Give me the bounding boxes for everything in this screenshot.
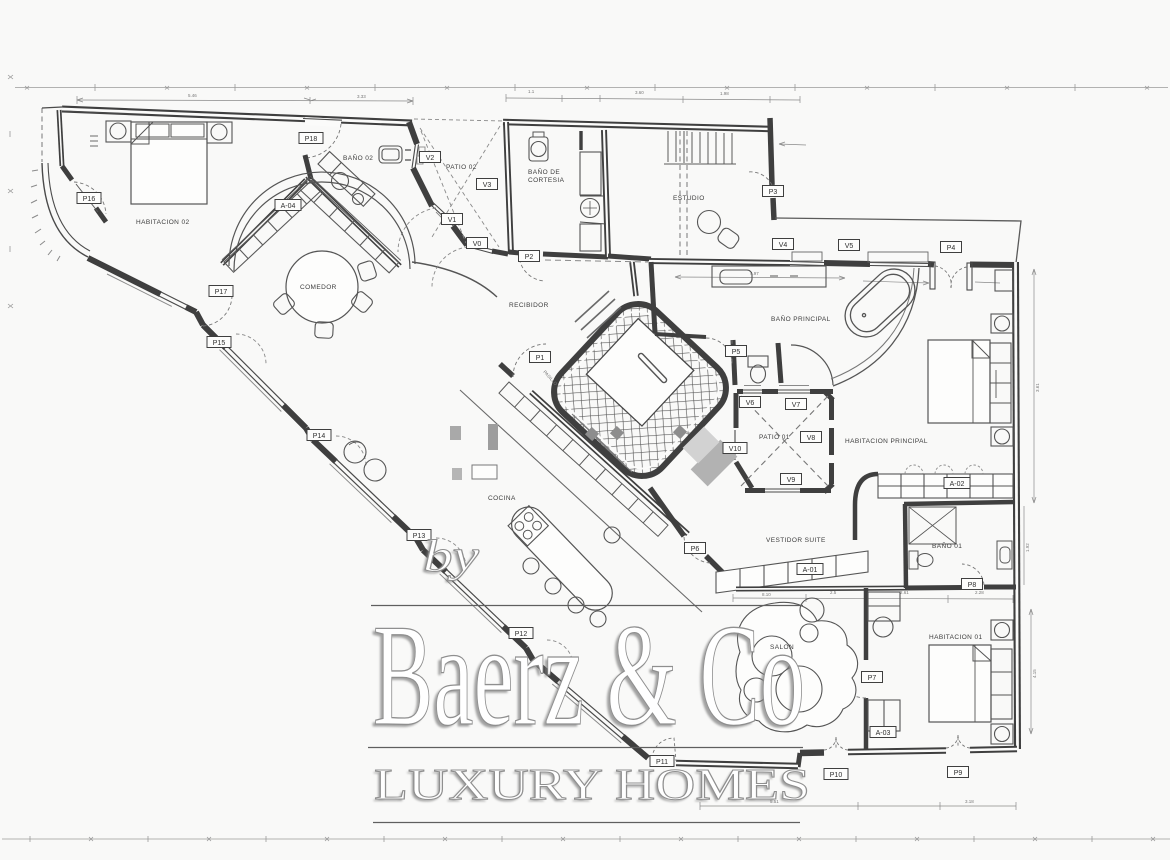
svg-text:5.46: 5.46 (188, 93, 197, 98)
svg-text:P18: P18 (305, 136, 318, 143)
svg-text:P2: P2 (525, 254, 534, 261)
svg-text:A-01: A-01 (803, 567, 818, 574)
svg-text:V2: V2 (426, 155, 435, 162)
svg-text:P8: P8 (968, 582, 977, 589)
svg-text:LUXURY HOMES: LUXURY HOMES (374, 760, 810, 809)
svg-text:P17: P17 (215, 289, 228, 296)
svg-text:V0: V0 (473, 241, 482, 248)
svg-text:3.33: 3.33 (357, 94, 366, 99)
svg-text:CORTESIA: CORTESIA (528, 177, 565, 184)
svg-text:VESTIDOR SUITE: VESTIDOR SUITE (766, 537, 826, 544)
svg-text:A-04: A-04 (281, 203, 296, 210)
svg-text:Baerz & Co: Baerz & Co (373, 594, 805, 756)
svg-text:P15: P15 (213, 340, 226, 347)
svg-text:V9: V9 (787, 477, 796, 484)
svg-text:1.92: 1.92 (1025, 543, 1030, 552)
svg-text:V5: V5 (845, 243, 854, 250)
svg-text:P5: P5 (732, 349, 741, 356)
svg-text:RECIBIDOR: RECIBIDOR (509, 302, 549, 309)
svg-text:V10: V10 (729, 446, 742, 453)
svg-text:BAÑO DE: BAÑO DE (528, 167, 560, 176)
svg-text:3.18: 3.18 (965, 799, 974, 804)
svg-text:P16: P16 (83, 196, 96, 203)
svg-text:V3: V3 (483, 182, 492, 189)
svg-text:P10: P10 (830, 772, 843, 779)
svg-text:P9: P9 (954, 770, 963, 777)
svg-text:BAÑO 01: BAÑO 01 (932, 541, 962, 550)
svg-text:4.15: 4.15 (1032, 669, 1037, 678)
svg-text:V4: V4 (779, 242, 788, 249)
svg-text:P3: P3 (769, 189, 778, 196)
svg-text:1.1: 1.1 (528, 89, 535, 94)
svg-text:PATIO 01: PATIO 01 (759, 434, 790, 441)
svg-text:COCINA: COCINA (488, 495, 516, 502)
svg-text:V7: V7 (792, 402, 801, 409)
svg-text:3.61: 3.61 (1035, 383, 1040, 392)
svg-text:A-02: A-02 (950, 481, 965, 488)
svg-text:3.60: 3.60 (635, 90, 644, 95)
svg-text:P4: P4 (947, 245, 956, 252)
svg-text:2.28: 2.28 (975, 590, 984, 595)
svg-text:COMEDOR: COMEDOR (300, 284, 337, 291)
svg-text:P14: P14 (313, 433, 326, 440)
svg-text:HABITACION PRINCIPAL: HABITACION PRINCIPAL (845, 438, 928, 445)
svg-text:P1: P1 (536, 355, 545, 362)
svg-text:HABITACION 02: HABITACION 02 (136, 219, 189, 226)
svg-text:2.61: 2.61 (900, 590, 909, 595)
svg-text:by: by (423, 530, 480, 581)
svg-text:BAÑO 02: BAÑO 02 (343, 153, 373, 162)
svg-text:V1: V1 (448, 217, 457, 224)
svg-text:P7: P7 (868, 675, 877, 682)
svg-text:PATIO 02: PATIO 02 (446, 164, 477, 171)
svg-text:HABITACION 01: HABITACION 01 (929, 634, 982, 641)
svg-text:ESTUDIO: ESTUDIO (673, 195, 705, 202)
svg-text:BAÑO PRINCIPAL: BAÑO PRINCIPAL (771, 314, 831, 323)
svg-text:V6: V6 (746, 400, 755, 407)
svg-text:V8: V8 (807, 435, 816, 442)
svg-text:P6: P6 (691, 546, 700, 553)
svg-text:1.98: 1.98 (720, 91, 729, 96)
svg-text:A-03: A-03 (876, 730, 891, 737)
